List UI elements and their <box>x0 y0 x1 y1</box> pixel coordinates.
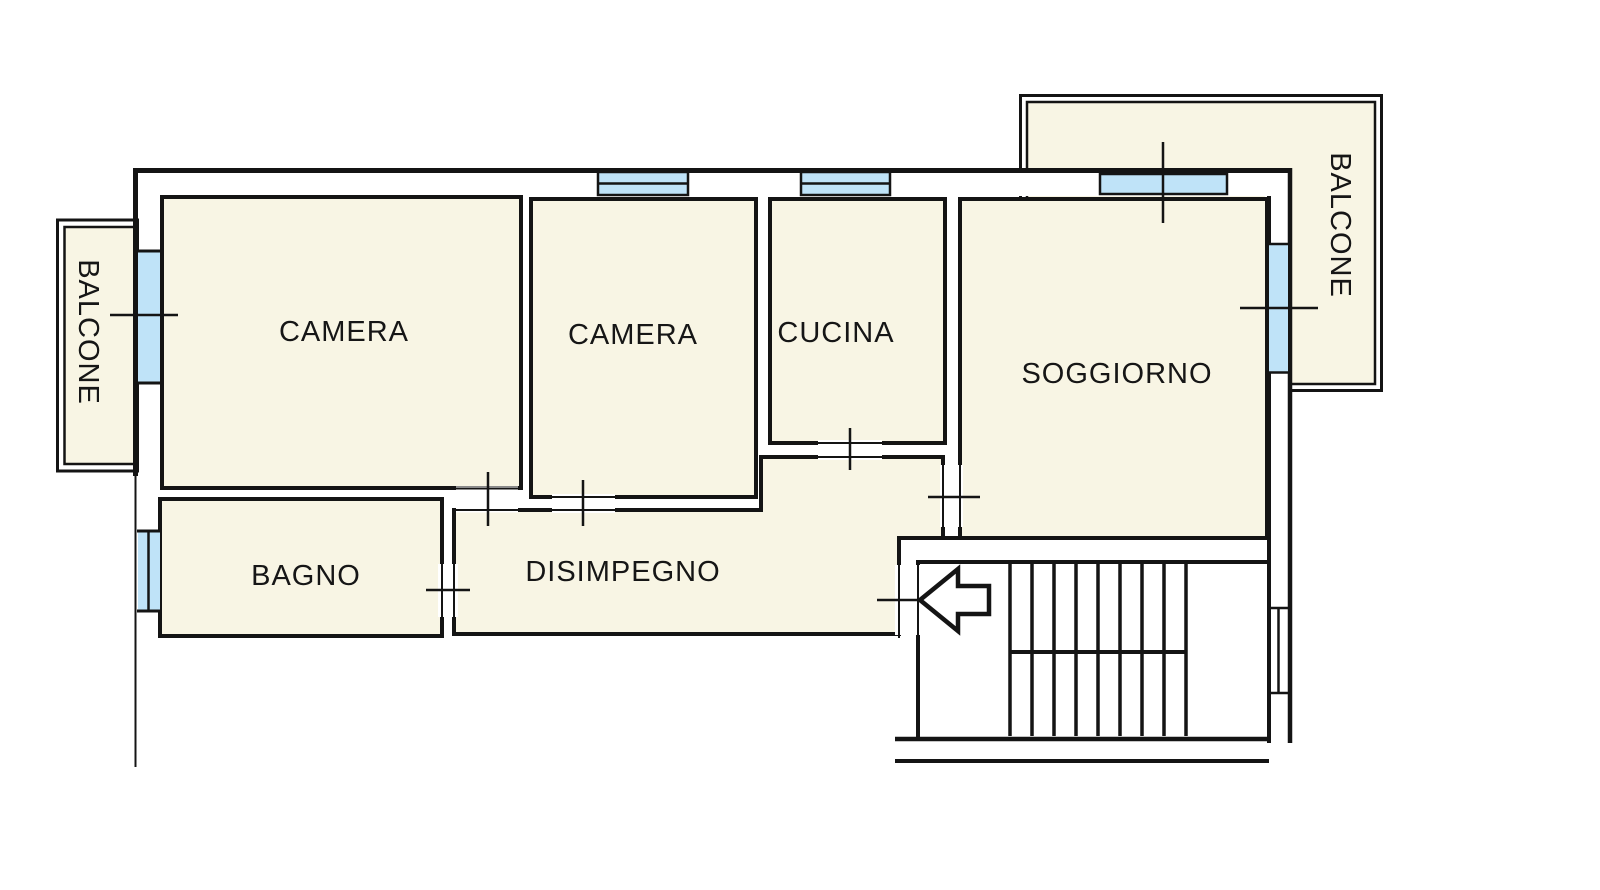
label-disimpegno: DISIMPEGNO <box>525 556 720 588</box>
label-bagno: BAGNO <box>251 560 361 592</box>
label-camera-1: CAMERA <box>279 316 409 348</box>
label-soggiorno: SOGGIORNO <box>1021 358 1212 390</box>
label-balcone-east: BALCONE <box>1324 152 1356 298</box>
floor-plan-canvas: CAMERA CAMERA CUCINA SOGGIORNO BAGNO DIS… <box>0 0 1600 890</box>
window-camera-2-north <box>598 172 688 195</box>
label-camera-2: CAMERA <box>568 319 698 351</box>
window-bagno-west <box>137 531 161 611</box>
label-balcone-west: BALCONE <box>72 259 104 405</box>
floor-plan-page: CAMERA CAMERA CUCINA SOGGIORNO BAGNO DIS… <box>0 0 1600 890</box>
window-cucina-north <box>801 172 890 195</box>
label-cucina: CUCINA <box>777 317 894 349</box>
